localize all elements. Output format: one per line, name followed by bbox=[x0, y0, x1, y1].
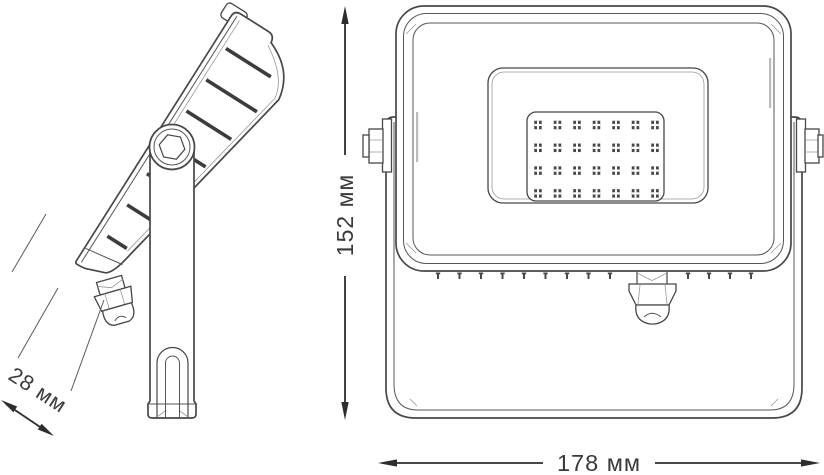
led-chip bbox=[593, 166, 601, 175]
height-arrowhead-up bbox=[341, 6, 348, 24]
extension-line-a bbox=[12, 214, 46, 272]
width-dimension: 178 мм bbox=[378, 450, 820, 475]
bolt-washer bbox=[797, 119, 806, 172]
drawing-svg: 28 мм 152 мм bbox=[0, 0, 824, 475]
led-chip bbox=[573, 121, 581, 130]
bolt-hex-head bbox=[805, 129, 819, 163]
led-chip bbox=[651, 121, 659, 130]
arm-strip bbox=[148, 147, 196, 418]
led-chip bbox=[554, 189, 562, 198]
height-dimension-label: 152 мм bbox=[332, 174, 358, 256]
led-chip bbox=[632, 166, 640, 175]
pivot-bolt bbox=[150, 125, 195, 170]
led-chip bbox=[612, 189, 620, 198]
led-chip bbox=[632, 144, 640, 153]
edge-highlight-left bbox=[416, 112, 418, 162]
bolt-washer bbox=[383, 119, 392, 172]
led-chip bbox=[534, 144, 542, 153]
led-chip bbox=[632, 121, 640, 130]
pivot-boss bbox=[150, 125, 195, 170]
led-chip bbox=[632, 189, 640, 198]
cable-gland-side bbox=[91, 274, 140, 329]
led-chip bbox=[593, 189, 601, 198]
led-chip bbox=[593, 121, 601, 130]
led-chip bbox=[573, 189, 581, 198]
width-arrowhead-right bbox=[801, 459, 820, 466]
left-mounting-bolt bbox=[363, 119, 392, 172]
gland-nut bbox=[629, 284, 676, 305]
led-chip bbox=[573, 166, 581, 175]
led-chip bbox=[554, 144, 562, 153]
width-dimension-label: 178 мм bbox=[557, 450, 641, 475]
led-chip bbox=[651, 144, 659, 153]
front-view: 178 мм bbox=[363, 6, 823, 475]
led-chip bbox=[534, 166, 542, 175]
extension-line-b bbox=[18, 288, 58, 358]
right-mounting-bolt bbox=[797, 119, 824, 172]
led-chip bbox=[534, 189, 542, 198]
led-chip bbox=[612, 144, 620, 153]
extension-line-c bbox=[71, 300, 104, 391]
depth-arrowhead-right bbox=[38, 424, 54, 436]
led-chip bbox=[651, 189, 659, 198]
width-arrowhead-left bbox=[378, 459, 397, 466]
led-chip bbox=[554, 166, 562, 175]
led-chip bbox=[612, 121, 620, 130]
bolt-tip bbox=[818, 135, 823, 157]
led-chip bbox=[554, 121, 562, 130]
side-view: 28 мм bbox=[1, 2, 309, 436]
floodlight-dimension-drawing: 28 мм 152 мм bbox=[0, 0, 824, 475]
led-chip bbox=[593, 144, 601, 153]
mounting-arm bbox=[148, 147, 196, 418]
led-chip bbox=[534, 121, 542, 130]
height-dimension: 152 мм bbox=[332, 6, 358, 420]
edge-highlight-right bbox=[769, 58, 771, 108]
led-chip bbox=[651, 166, 659, 175]
height-arrowhead-down bbox=[341, 402, 348, 420]
led-chip bbox=[573, 144, 581, 153]
led-chip bbox=[612, 166, 620, 175]
bolt-hex-head bbox=[369, 129, 383, 163]
bolt-tip bbox=[363, 135, 369, 157]
